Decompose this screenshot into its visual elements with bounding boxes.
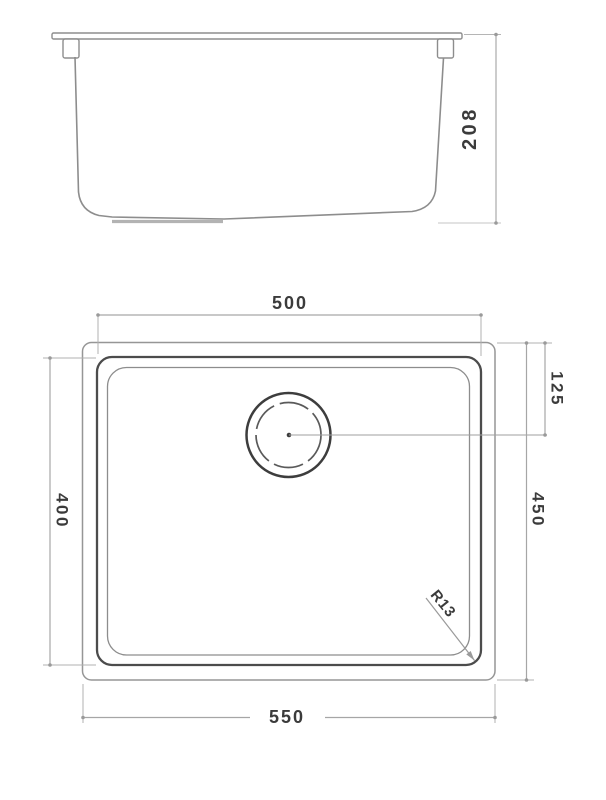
dim-end-mark <box>494 221 498 225</box>
side-elevation-view: 208 <box>52 33 501 225</box>
dim-end-mark <box>543 341 547 345</box>
dim-end-mark <box>525 341 529 345</box>
dim-bowl-length-label: 500 <box>272 293 308 313</box>
dim-bowl-width-label: 400 <box>53 493 72 529</box>
dim-end-mark <box>479 313 483 317</box>
sink-rim-profile <box>52 33 462 39</box>
dim-overall-width-label: 450 <box>529 492 548 528</box>
dim-drain-offset-label: 125 <box>548 371 567 407</box>
dim-end-mark <box>525 678 529 682</box>
dimension-height: 208 <box>438 33 501 225</box>
basin-profile-outline <box>75 57 444 219</box>
dim-end-mark <box>48 663 52 667</box>
dim-end-mark <box>48 356 52 360</box>
dimension-overall-length: 550 <box>81 684 497 727</box>
dim-end-mark <box>81 716 85 720</box>
dim-end-mark <box>96 313 100 317</box>
dim-height-label: 208 <box>459 106 481 150</box>
drawing-svg: 208 500 <box>0 0 606 800</box>
mounting-clip-right <box>438 39 454 58</box>
plan-view: 500 400 450 125 <box>43 293 567 727</box>
dimension-overall-width: 450 <box>497 341 552 682</box>
dim-overall-length-label: 550 <box>269 707 305 727</box>
dim-end-mark <box>543 433 547 437</box>
sink-technical-drawing: 208 500 <box>0 0 606 800</box>
dimension-drain-offset: 125 <box>543 341 566 437</box>
mounting-clip-left <box>63 39 79 58</box>
dim-end-mark <box>494 33 498 37</box>
dim-end-mark <box>493 716 497 720</box>
